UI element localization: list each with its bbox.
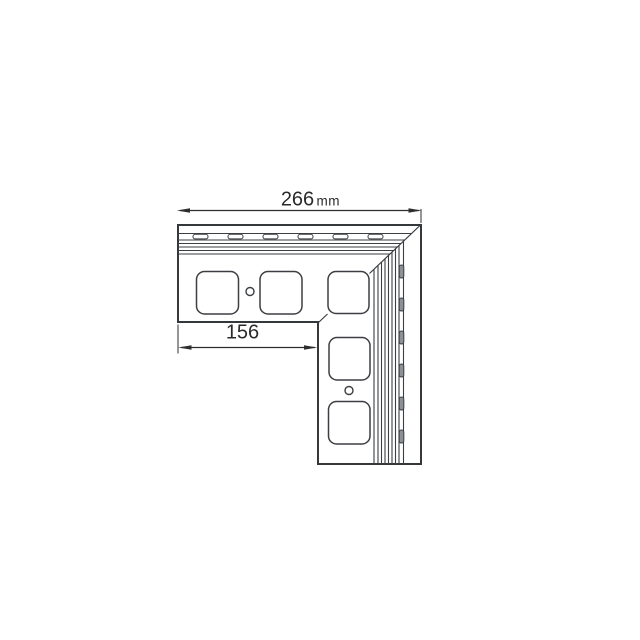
vent-slot bbox=[399, 364, 404, 377]
vent-slot bbox=[193, 234, 208, 239]
vent-slot bbox=[399, 430, 404, 443]
vent-slot bbox=[399, 298, 404, 311]
dimension-unit: mm bbox=[317, 194, 341, 209]
dimension-value: 266 bbox=[281, 189, 314, 211]
arrowhead-right bbox=[409, 208, 422, 213]
vent-slot bbox=[333, 234, 348, 239]
vent-slot bbox=[368, 234, 383, 239]
arrowhead-left bbox=[178, 345, 191, 350]
screw-hole bbox=[345, 387, 353, 395]
vent-slot bbox=[399, 265, 404, 278]
dimension-value: 156 bbox=[226, 322, 259, 344]
face-cutouts bbox=[197, 272, 371, 445]
screw-hole bbox=[246, 288, 254, 296]
square-cutout bbox=[328, 272, 369, 314]
drawing-canvas: 266 mm 156 bbox=[0, 0, 640, 640]
arrowhead-right bbox=[304, 345, 317, 350]
vent-slot bbox=[228, 234, 243, 239]
vent-slot bbox=[298, 234, 313, 239]
vent-slot bbox=[399, 397, 404, 410]
corner-profile-drawing: 266 mm 156 bbox=[0, 0, 640, 640]
vent-slot bbox=[263, 234, 278, 239]
square-cutout bbox=[329, 402, 371, 445]
vent-slot bbox=[399, 331, 404, 344]
square-cutout bbox=[197, 272, 239, 315]
right-edge-band bbox=[374, 241, 404, 464]
arrowhead-left bbox=[177, 208, 190, 213]
square-cutout bbox=[329, 338, 370, 381]
dimension-partial-width: 156 bbox=[178, 322, 317, 354]
dimension-total-width: 266 mm bbox=[177, 189, 422, 224]
square-cutout bbox=[260, 272, 302, 315]
